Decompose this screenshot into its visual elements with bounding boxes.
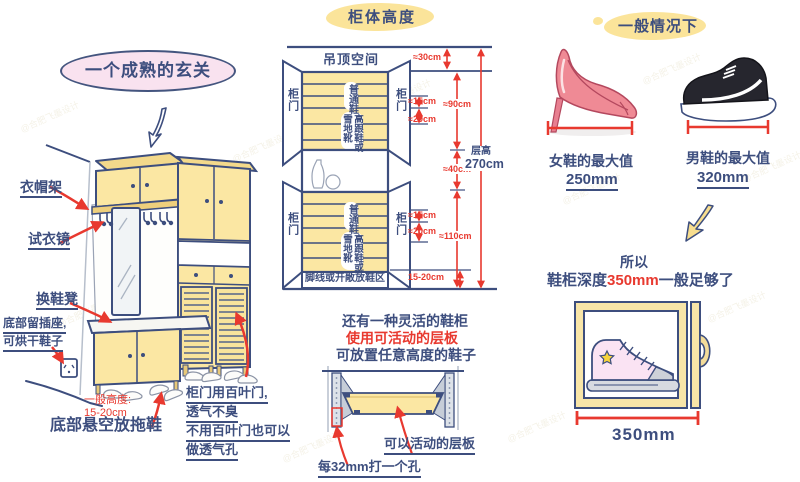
cabinet-handle (700, 335, 710, 367)
dim-15cm-upper: ≈15cm (408, 96, 436, 106)
label-movable-shelf: 可以活动的层板 (384, 437, 475, 455)
entryway-infographic: @合肥飞墨设计 @合肥飞墨设计 @合肥飞墨设计 @合肥飞墨设计 @合肥飞墨设计 … (0, 0, 800, 482)
label-coat-rack: 衣帽架 (20, 179, 62, 198)
label-boots-upper: 高跟鞋或雪地靴 (341, 114, 363, 158)
value-depth: 350mm (612, 425, 676, 445)
label-socket-2: 可烘干鞋子 (3, 335, 63, 352)
shoes-and-depth-illustration (530, 40, 800, 460)
label-hole-note: 每32mm打一个孔 (318, 460, 421, 478)
label-slippers: 底部悬空放拖鞋 (50, 417, 162, 435)
depth-cabinet-drawing (575, 302, 710, 408)
label-door-upper-right: 柜门 (394, 88, 407, 112)
right-title-highlight-dot (593, 17, 603, 25)
dim-floor-value: 270cm (463, 157, 506, 171)
dim-90cm: ≈90cm (441, 99, 473, 109)
sneaker-drawing (681, 58, 776, 121)
dim-floor-label: 层高 (469, 146, 493, 158)
dim-15cm-lower: ≈15cm (408, 210, 436, 220)
watermark: @合肥飞墨设计 (18, 98, 81, 136)
wall-socket-icon (61, 359, 77, 377)
conclusion-post: 一般足够了 (659, 272, 734, 289)
dim-20cm-lower: ≈20cm (408, 226, 436, 236)
yellow-arrow-down-icon (686, 205, 713, 241)
label-door-lower-left: 柜门 (286, 212, 299, 236)
open-shelf-niche (178, 241, 250, 267)
upper-right-door (388, 61, 410, 165)
movable-shelf-diagram (318, 360, 468, 475)
conclusion-value: 350mm (607, 272, 659, 289)
label-door-upper-left: 柜门 (286, 88, 299, 112)
dim-20cm-upper: ≈20cm (408, 114, 436, 124)
label-louver-1: 柜门用百叶门, (186, 386, 268, 404)
middle-title: 柜体高度 (348, 9, 416, 26)
value-women-max: 250mm (566, 171, 618, 191)
mirror-drawing (112, 208, 140, 315)
label-socket-1: 底部留插座, (3, 317, 66, 334)
dim-base: 15-20cm (408, 272, 444, 282)
conclusion-pre: 鞋柜深度 (547, 272, 607, 289)
label-ceiling-space: 吊顶空间 (323, 53, 379, 68)
label-louver-3: 不用百叶门也可以 (186, 424, 290, 442)
depth-measure-line (577, 411, 698, 425)
label-bench: 换鞋凳 (36, 291, 78, 310)
conclusion-line: 鞋柜深度350mm一般足够了 (547, 272, 734, 289)
flex-note-2: 使用可活动的层板 (346, 330, 458, 346)
label-so: 所以 (620, 254, 648, 270)
label-mirror: 试衣镜 (28, 231, 70, 250)
label-door-lower-right: 柜门 (394, 212, 407, 236)
men-measure-line (688, 120, 768, 134)
label-louver-2: 透气不臭 (186, 405, 238, 423)
dim-110cm: ≈110cm (437, 231, 473, 241)
label-women-max: 女鞋的最大值 (549, 153, 633, 169)
label-louver-4: 做透气孔 (186, 443, 238, 461)
dim-30cm: ≈30cm (413, 52, 441, 62)
label-boots-lower: 高跟鞋或雪地靴 (341, 234, 363, 278)
label-base-zone: 脚线或开敞放鞋区 (303, 273, 387, 285)
label-men-max: 男鞋的最大值 (686, 150, 770, 166)
label-height-note-1: 一般高度: (84, 394, 131, 407)
flex-note-1: 还有一种灵活的鞋柜 (342, 313, 468, 329)
right-title: 一般情况下 (618, 18, 698, 35)
upper-left-door (283, 61, 302, 165)
label-regular-shoes-lower: 普通鞋 (346, 204, 358, 234)
left-title-bubble: 一个成熟的玄关 (60, 50, 236, 92)
value-men-max: 320mm (697, 169, 749, 189)
high-heel-drawing (548, 50, 636, 136)
left-title: 一个成熟的玄关 (85, 61, 211, 81)
label-regular-shoes-upper: 普通鞋 (346, 84, 358, 114)
